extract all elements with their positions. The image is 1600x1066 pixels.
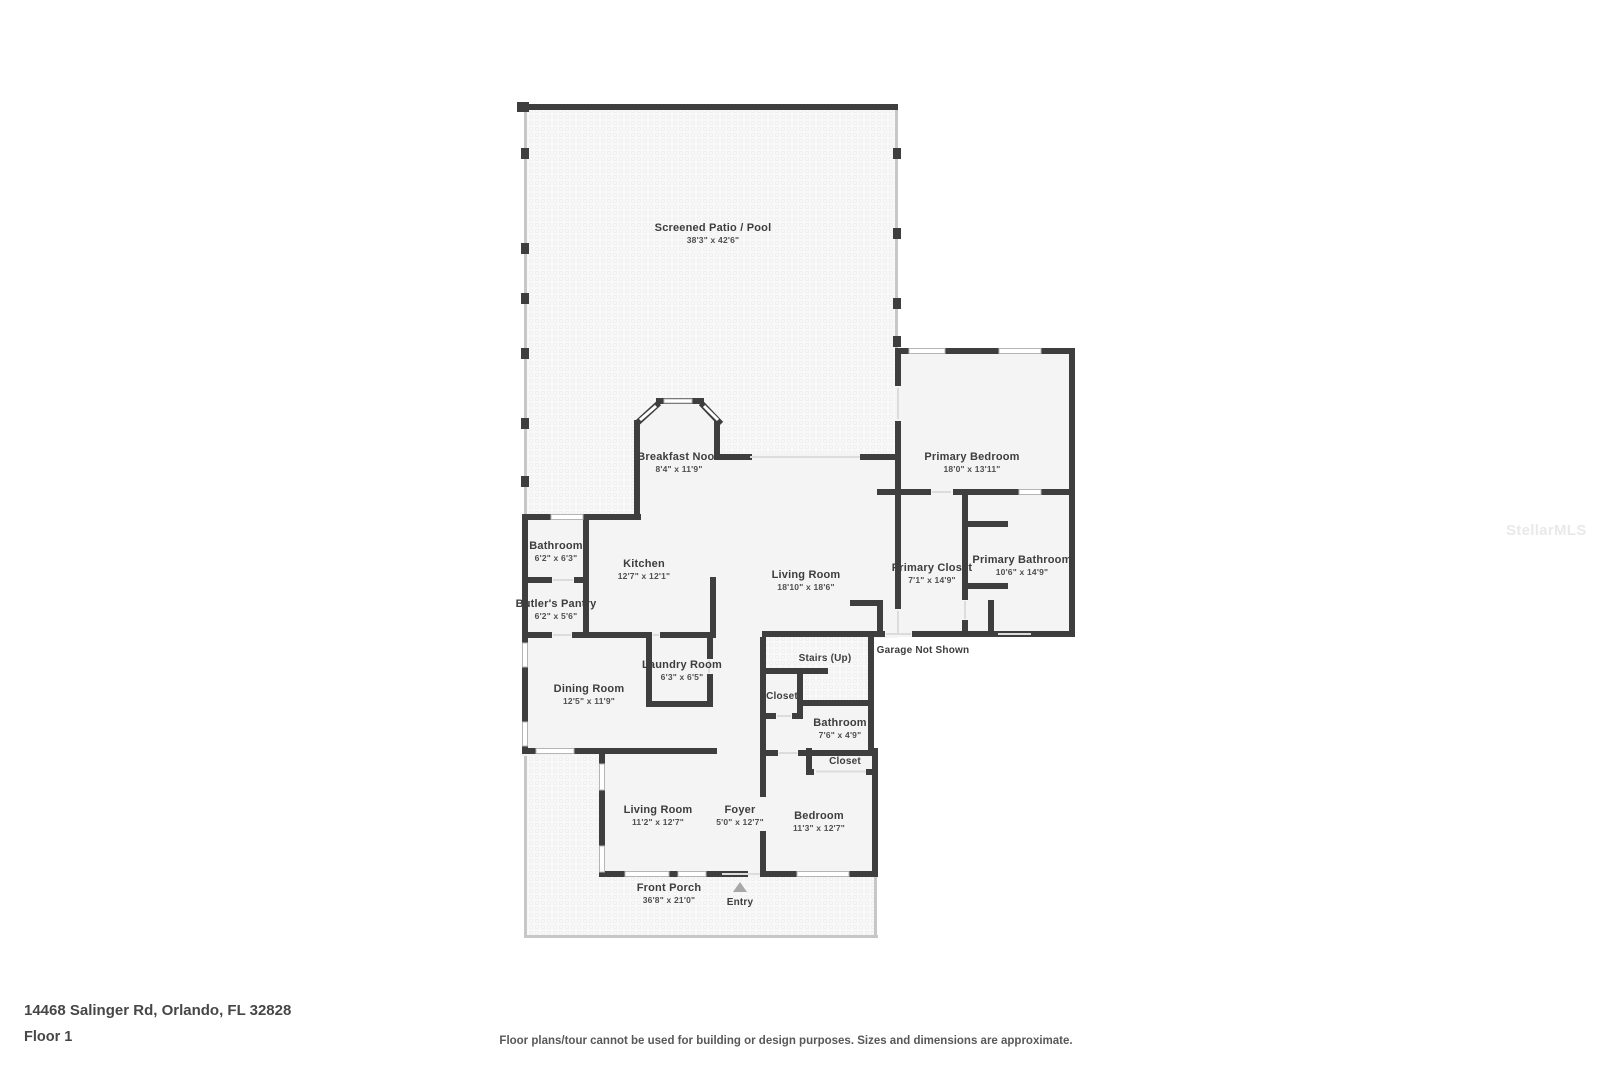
- room-dims: 8'4" x 11'9": [637, 464, 721, 475]
- room-dims: 10'6" x 14'9": [972, 567, 1071, 578]
- room-dims: 18'0" x 13'11": [924, 464, 1019, 475]
- room-name: Kitchen: [618, 558, 671, 571]
- label-closet-bedroom: Closet: [829, 755, 861, 768]
- room-name: Primary Bedroom: [924, 451, 1019, 464]
- label-stairs: Stairs (Up): [799, 652, 852, 665]
- room-dims: 7'1" x 14'9": [892, 575, 972, 586]
- room-name: Laundry Room: [642, 659, 722, 672]
- room-label-bathroom-upper: Bathroom 6'2" x 6'3": [529, 540, 583, 564]
- room-name: Front Porch: [637, 882, 702, 895]
- floor-label: Floor 1: [24, 1029, 72, 1045]
- room-name: Bathroom: [529, 540, 583, 553]
- room-dims: 38'3" x 42'6": [655, 235, 772, 246]
- room-label-bedroom: Bedroom 11'3" x 12'7": [793, 810, 845, 834]
- room-name: Breakfast Nook: [637, 451, 721, 464]
- room-label-butlers-pantry: Butler's Pantry 6'2" x 5'6": [516, 598, 597, 622]
- room-name: Bedroom: [793, 810, 845, 823]
- room-dims: 11'2" x 12'7": [624, 817, 693, 828]
- room-label-foyer: Foyer 5'0" x 12'7": [716, 804, 764, 828]
- room-name: Entry: [727, 896, 754, 909]
- room-name: Dining Room: [554, 683, 625, 696]
- property-address: 14468 Salinger Rd, Orlando, FL 32828: [24, 1002, 291, 1019]
- room-dims: 5'0" x 12'7": [716, 817, 764, 828]
- room-dims: 7'6" x 4'9": [813, 730, 867, 741]
- room-name: Primary Bathroom: [972, 554, 1071, 567]
- room-dims: 11'3" x 12'7": [793, 823, 845, 834]
- room-label-primary-closet: Primary Closet 7'1" x 14'9": [892, 562, 972, 586]
- room-name: Garage Not Shown: [877, 644, 970, 657]
- room-name: Butler's Pantry: [516, 598, 597, 611]
- room-label-laundry-room: Laundry Room 6'3" x 6'5": [642, 659, 722, 683]
- room-dims: 36'8" x 21'0": [637, 895, 702, 906]
- room-name: Stairs (Up): [799, 652, 852, 665]
- room-dims: 6'3" x 6'5": [642, 672, 722, 683]
- room-label-breakfast-nook: Breakfast Nook 8'4" x 11'9": [637, 451, 721, 475]
- room-name: Closet: [766, 690, 798, 703]
- room-name: Living Room: [624, 804, 693, 817]
- floor-plan-page: .rf{fill:#f4f4f4;} .wl{fill:#3e3e3e;} .s…: [0, 0, 1600, 1066]
- room-dims: 12'7" x 12'1": [618, 571, 671, 582]
- room-name: Foyer: [716, 804, 764, 817]
- room-label-bathroom-hall: Bathroom 7'6" x 4'9": [813, 717, 867, 741]
- room-dims: 6'2" x 5'6": [516, 611, 597, 622]
- room-name: Closet: [829, 755, 861, 768]
- room-label-living-room-main: Living Room 18'10" x 18'6": [772, 569, 841, 593]
- room-label-front-porch: Front Porch 36'8" x 21'0": [637, 882, 702, 906]
- disclaimer-text: Floor plans/tour cannot be used for buil…: [499, 1035, 1072, 1047]
- entry-arrow-icon: [733, 882, 747, 892]
- room-label-primary-bathroom: Primary Bathroom 10'6" x 14'9": [972, 554, 1071, 578]
- room-label-kitchen: Kitchen 12'7" x 12'1": [618, 558, 671, 582]
- room-name: Bathroom: [813, 717, 867, 730]
- label-closet-hall: Closet: [766, 690, 798, 703]
- room-dims: 6'2" x 6'3": [529, 553, 583, 564]
- room-label-dining-room: Dining Room 12'5" x 11'9": [554, 683, 625, 707]
- floor-plan-drawing: .rf{fill:#f4f4f4;} .wl{fill:#3e3e3e;} .s…: [0, 0, 1600, 1066]
- room-label-screened-patio: Screened Patio / Pool 38'3" x 42'6": [655, 222, 772, 246]
- stellar-mls-watermark: StellarMLS: [1506, 522, 1587, 539]
- room-name: Living Room: [772, 569, 841, 582]
- label-entry: Entry: [727, 896, 754, 909]
- room-dims: 18'10" x 18'6": [772, 582, 841, 593]
- room-label-living-room-front: Living Room 11'2" x 12'7": [624, 804, 693, 828]
- room-name: Primary Closet: [892, 562, 972, 575]
- room-label-primary-bedroom: Primary Bedroom 18'0" x 13'11": [924, 451, 1019, 475]
- label-garage-note: Garage Not Shown: [877, 644, 970, 657]
- room-name: Screened Patio / Pool: [655, 222, 772, 235]
- room-dims: 12'5" x 11'9": [554, 696, 625, 707]
